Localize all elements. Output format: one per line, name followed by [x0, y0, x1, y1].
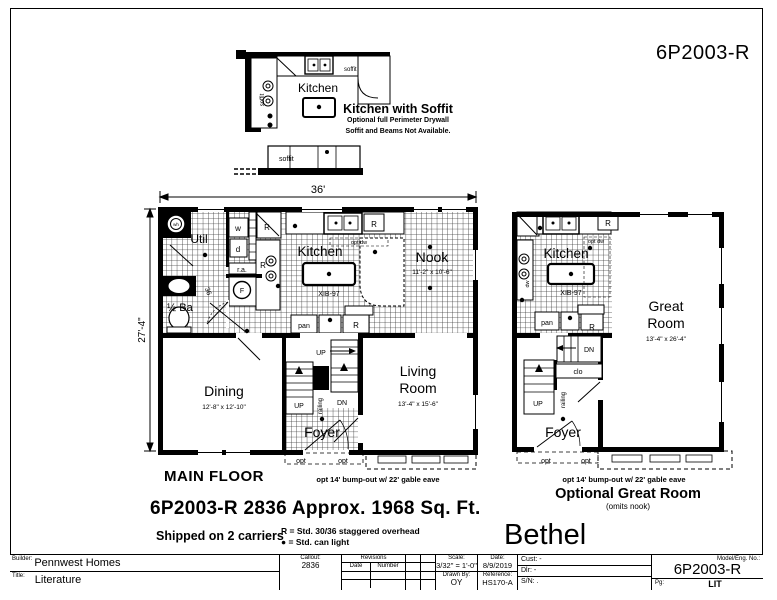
revision-date-header: Date [342, 563, 371, 571]
revisions-label: Revisions [342, 555, 405, 563]
title-block-holder: Builder: Pennwest Homes Title: Literatur… [10, 8, 763, 590]
callout-value: 2836 [280, 561, 341, 570]
title-block: Builder: Pennwest Homes Title: Literatur… [10, 554, 763, 590]
cust-value: - [539, 556, 541, 563]
builder-value: Pennwest Homes [34, 555, 120, 569]
scale-drawn-cell: Scale: 3/32" = 1'-0" Drawn By: OY [436, 555, 478, 590]
revisions-cell: Revisions Date Number [342, 555, 436, 590]
model-eng-value: 6P2003-R [652, 562, 763, 577]
pg-label: Pg: [652, 579, 667, 590]
sheet-title-label: Title: [10, 572, 27, 580]
model-number-cell: Model/Eng. No.: 6P2003-R Pg: LIT [652, 555, 763, 590]
revision-number-header: Number [371, 563, 405, 571]
builder-label: Builder: [10, 555, 34, 563]
dlr-label: Dlr: [521, 567, 532, 574]
sheet-title-value: Literature [27, 572, 81, 586]
sn-value: . [537, 578, 539, 585]
date-reference-cell: Date: 8/9/2019 Reference: HS170-A [478, 555, 518, 590]
customer-cell: Cust: - Dlr: - S/N: . [518, 555, 652, 590]
builder-title-cell: Builder: Pennwest Homes Title: Literatur… [10, 555, 280, 590]
date-value: 8/9/2019 [478, 561, 517, 570]
drawing-sheet: 6P2003-R [0, 0, 777, 600]
dlr-value: - [534, 567, 536, 574]
scale-value: 3/32" = 1'-0" [436, 561, 477, 570]
drawn-by-value: OY [436, 578, 477, 587]
cust-label: Cust: [521, 556, 537, 563]
pg-value: LIT [667, 579, 763, 590]
callout-cell: Callout: 2836 [280, 555, 342, 590]
reference-value: HS170-A [478, 578, 517, 587]
sn-label: S/N: [521, 578, 535, 585]
